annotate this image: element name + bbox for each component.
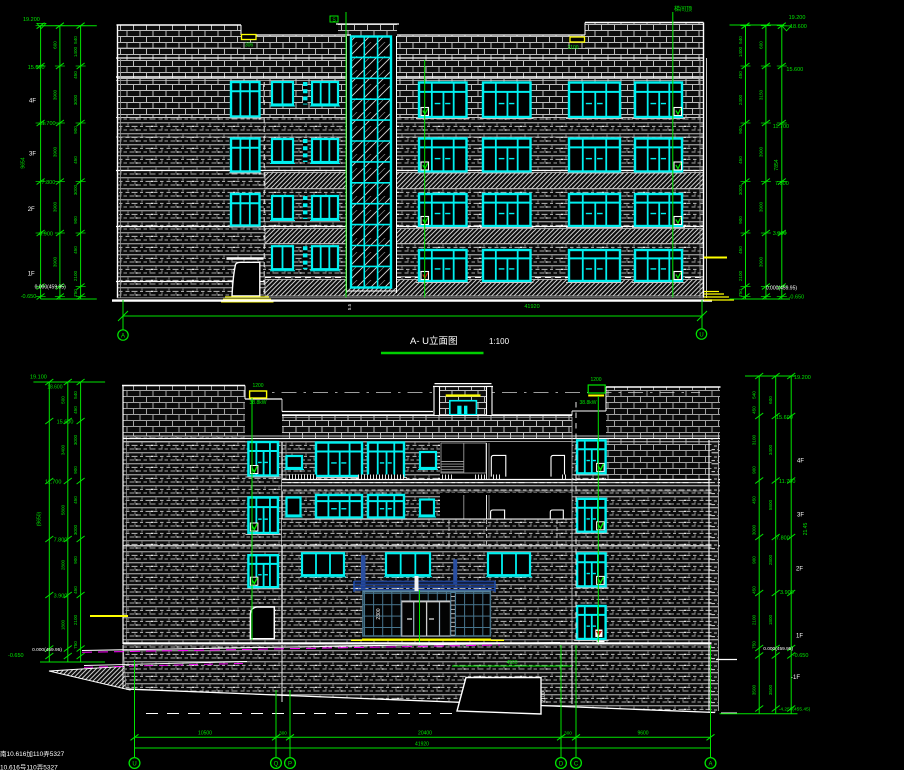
svg-text:450: 450	[73, 71, 78, 79]
svg-text:19.100: 19.100	[30, 375, 47, 381]
svg-text:1:100: 1:100	[489, 337, 510, 346]
svg-text:19.200: 19.200	[23, 17, 40, 23]
svg-text:540: 540	[738, 36, 743, 44]
svg-text:2400: 2400	[738, 94, 743, 105]
svg-text:900: 900	[73, 466, 78, 474]
svg-text:11.700: 11.700	[39, 121, 55, 127]
svg-text:450: 450	[738, 156, 743, 164]
svg-text:15.600: 15.600	[57, 420, 74, 426]
svg-text:3900: 3900	[52, 146, 57, 157]
svg-text:450: 450	[73, 586, 78, 594]
svg-text:7.800: 7.800	[775, 181, 789, 187]
svg-text:2800: 2800	[60, 559, 65, 570]
svg-text:450: 450	[73, 156, 78, 164]
svg-text:450: 450	[752, 586, 757, 594]
svg-text:-0.650: -0.650	[793, 653, 809, 659]
svg-text:450: 450	[73, 246, 78, 254]
svg-text:450: 450	[738, 246, 743, 254]
svg-text:11.700: 11.700	[773, 124, 789, 130]
svg-text:900: 900	[73, 556, 78, 564]
svg-text:A: A	[708, 762, 712, 768]
svg-text:7.800: 7.800	[54, 538, 68, 544]
svg-text:19.200: 19.200	[789, 15, 806, 21]
svg-text:450: 450	[752, 496, 757, 504]
svg-text:梯间顶: 梯间顶	[674, 5, 692, 13]
svg-text:1F: 1F	[28, 272, 35, 278]
svg-text:3900: 3900	[52, 256, 57, 267]
svg-text:5.5: 5.5	[347, 303, 352, 310]
svg-text:3900: 3900	[758, 201, 763, 212]
svg-text:2F: 2F	[796, 567, 803, 573]
svg-text:0.000(459.95): 0.000(459.95)	[766, 286, 797, 292]
svg-text:3000: 3000	[73, 434, 78, 445]
svg-text:0.000(459.95): 0.000(459.95)	[35, 285, 66, 291]
svg-text:3000: 3000	[738, 184, 743, 195]
svg-text:3.900: 3.900	[780, 590, 794, 596]
svg-text:15.600: 15.600	[776, 415, 793, 421]
svg-text:-0.650: -0.650	[8, 653, 24, 659]
svg-text:500: 500	[60, 396, 65, 404]
svg-text:38.8kW: 38.8kW	[580, 400, 597, 406]
svg-text:450: 450	[752, 406, 757, 414]
svg-text:南10.616加110弄5327: 南10.616加110弄5327	[0, 749, 65, 758]
svg-text:15.600: 15.600	[786, 67, 803, 73]
svg-text:3100: 3100	[752, 434, 757, 445]
svg-text:900: 900	[73, 216, 78, 224]
svg-text:Q: Q	[274, 762, 279, 768]
svg-text:2800: 2800	[768, 554, 773, 565]
svg-text:-0.650: -0.650	[789, 295, 805, 301]
svg-text:4500: 4500	[506, 660, 517, 666]
svg-text:306: 306	[245, 43, 254, 49]
svg-text:750: 750	[752, 641, 757, 649]
svg-text:1800: 1800	[60, 619, 65, 630]
svg-text:2100: 2100	[73, 614, 78, 625]
svg-text:3900: 3900	[758, 256, 763, 267]
svg-text:750: 750	[73, 641, 78, 649]
svg-text:1F: 1F	[796, 634, 803, 640]
svg-text:600: 600	[52, 41, 57, 49]
svg-text:11.700: 11.700	[45, 480, 61, 486]
svg-text:5800: 5800	[768, 499, 773, 510]
svg-text:2100: 2100	[738, 270, 743, 281]
svg-text:3500: 3500	[752, 684, 757, 695]
svg-text:10500: 10500	[198, 731, 212, 737]
svg-text:18.600: 18.600	[790, 24, 807, 30]
svg-text:(9650): (9650)	[37, 511, 43, 526]
svg-text:450: 450	[738, 71, 743, 79]
svg-text:3.900: 3.900	[773, 231, 787, 237]
svg-text:2300: 2300	[376, 608, 382, 619]
svg-text:3150: 3150	[758, 89, 763, 100]
svg-text:9600: 9600	[637, 731, 648, 737]
svg-text:540: 540	[73, 36, 78, 44]
svg-text:3.900: 3.900	[39, 232, 53, 238]
svg-text:20400: 20400	[418, 731, 432, 737]
svg-text:5800: 5800	[60, 504, 65, 515]
svg-text:1200: 1200	[590, 377, 601, 383]
svg-text:3F: 3F	[29, 152, 36, 158]
svg-text:3900: 3900	[758, 146, 763, 157]
svg-text:18.600: 18.600	[47, 385, 63, 391]
svg-text:3000: 3000	[73, 524, 78, 535]
svg-text:900: 900	[752, 466, 757, 474]
svg-text:600: 600	[758, 41, 763, 49]
svg-text:10.616号110弄5327: 10.616号110弄5327	[0, 764, 58, 770]
svg-text:15.600: 15.600	[28, 65, 45, 71]
svg-text:540: 540	[752, 391, 757, 399]
svg-text:A- U立面图: A- U立面图	[410, 335, 458, 347]
svg-text:300: 300	[564, 731, 572, 736]
svg-text:3900: 3900	[52, 201, 57, 212]
svg-text:3500: 3500	[768, 684, 773, 695]
svg-text:600: 600	[768, 396, 773, 404]
svg-text:3000: 3000	[73, 184, 78, 195]
svg-text:750: 750	[73, 289, 78, 297]
svg-text:2F: 2F	[28, 207, 35, 213]
svg-text:2100: 2100	[73, 270, 78, 281]
svg-text:A: A	[121, 334, 125, 340]
svg-text:4F: 4F	[797, 458, 804, 464]
svg-text:540: 540	[73, 391, 78, 399]
svg-text:U: U	[132, 762, 136, 768]
svg-text:2100: 2100	[541, 691, 547, 702]
svg-text:450: 450	[73, 496, 78, 504]
svg-text:1400: 1400	[73, 46, 78, 57]
svg-text:9654: 9654	[20, 157, 26, 168]
svg-text:3400: 3400	[60, 444, 65, 455]
svg-text:P: P	[288, 762, 292, 768]
svg-text:21.45: 21.45	[803, 523, 809, 536]
svg-text:2100: 2100	[752, 614, 757, 625]
svg-text:7.800: 7.800	[42, 180, 56, 186]
svg-text:0.000(459.95): 0.000(459.95)	[32, 647, 62, 653]
svg-text:900: 900	[738, 216, 743, 224]
svg-text:900: 900	[73, 126, 78, 134]
svg-text:41920: 41920	[524, 304, 539, 310]
svg-text:U: U	[699, 333, 703, 339]
svg-text:-4.250(455.45): -4.250(455.45)	[779, 707, 811, 713]
svg-text:7854: 7854	[774, 159, 780, 170]
svg-text:900: 900	[738, 126, 743, 134]
svg-text:0.000(459.95): 0.000(459.95)	[763, 646, 793, 652]
svg-text:4F: 4F	[29, 99, 36, 105]
svg-text:1800: 1800	[768, 614, 773, 625]
svg-text:41920: 41920	[415, 742, 429, 748]
svg-text:1200: 1200	[252, 383, 263, 389]
svg-text:3100: 3100	[567, 45, 578, 51]
svg-text:750: 750	[738, 289, 743, 297]
svg-text:450: 450	[73, 406, 78, 414]
svg-text:3900: 3900	[52, 89, 57, 100]
svg-text:D: D	[559, 762, 564, 768]
svg-text:11.700: 11.700	[779, 479, 795, 485]
svg-text:1400: 1400	[738, 46, 743, 57]
svg-text:3400: 3400	[768, 444, 773, 455]
svg-text:C: C	[574, 762, 579, 768]
svg-text:-1F: -1F	[791, 675, 800, 681]
svg-text:3.900: 3.900	[54, 593, 68, 599]
svg-text:300: 300	[279, 731, 287, 736]
svg-text:7.800: 7.800	[776, 535, 790, 541]
svg-text:3F: 3F	[797, 512, 804, 518]
svg-text:3000: 3000	[73, 94, 78, 105]
svg-text:3000: 3000	[752, 524, 757, 535]
svg-text:-0.650: -0.650	[21, 294, 37, 300]
svg-text:19.200: 19.200	[794, 375, 811, 381]
svg-text:900: 900	[752, 556, 757, 564]
